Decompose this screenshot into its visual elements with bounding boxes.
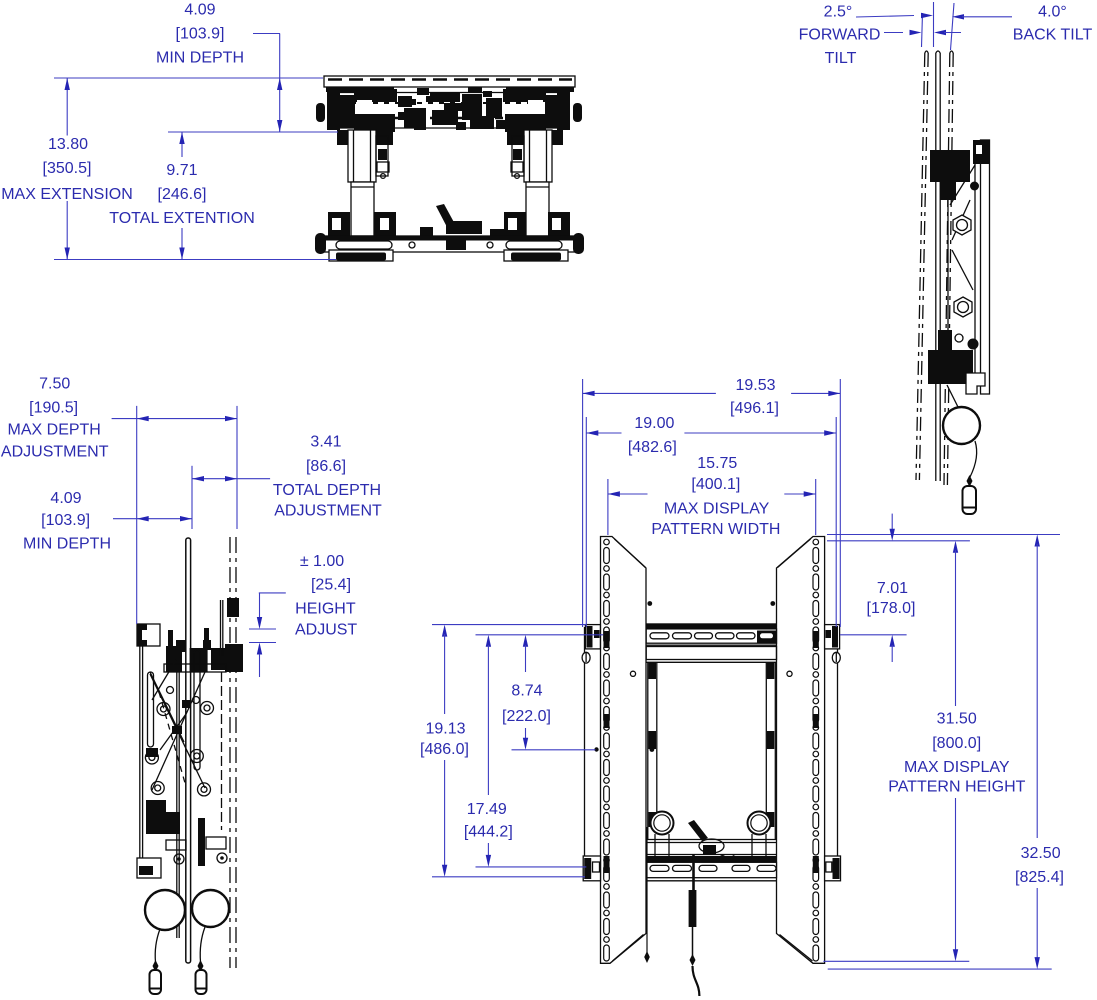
svg-text:[800.0]: [800.0] <box>932 735 981 752</box>
svg-text:7.01: 7.01 <box>877 580 908 597</box>
svg-text:31.50: 31.50 <box>937 711 977 728</box>
svg-text:[482.6]: [482.6] <box>628 439 677 456</box>
svg-text:17.49: 17.49 <box>467 801 507 818</box>
svg-text:[246.6]: [246.6] <box>158 186 207 203</box>
svg-text:TOTAL DEPTH: TOTAL DEPTH <box>273 482 381 499</box>
svg-text:8.74: 8.74 <box>511 683 542 700</box>
svg-text:[103.9]: [103.9] <box>41 512 90 529</box>
svg-text:19.13: 19.13 <box>425 721 465 738</box>
svg-text:HEIGHT: HEIGHT <box>295 601 356 618</box>
svg-text:MAX EXTENSION: MAX EXTENSION <box>1 186 133 203</box>
svg-text:TILT: TILT <box>825 50 857 67</box>
svg-text:9.71: 9.71 <box>166 162 197 179</box>
svg-text:[222.0]: [222.0] <box>502 708 551 725</box>
svg-text:[496.1]: [496.1] <box>730 400 779 417</box>
svg-text:2.5°: 2.5° <box>824 4 853 21</box>
svg-text:[190.5]: [190.5] <box>29 400 78 417</box>
svg-text:3.41: 3.41 <box>310 434 341 451</box>
svg-text:FORWARD: FORWARD <box>799 27 881 44</box>
svg-text:7.50: 7.50 <box>39 376 70 393</box>
svg-text:19.53: 19.53 <box>735 377 775 394</box>
svg-text:MAX DISPLAY: MAX DISPLAY <box>904 759 1010 776</box>
svg-text:4.0°: 4.0° <box>1038 4 1067 21</box>
svg-text:ADJUSTMENT: ADJUSTMENT <box>1 444 109 461</box>
svg-text:MIN DEPTH: MIN DEPTH <box>23 536 111 553</box>
svg-text:[444.2]: [444.2] <box>464 824 513 841</box>
svg-text:ADJUST: ADJUST <box>295 622 357 639</box>
svg-text:PATTERN HEIGHT: PATTERN HEIGHT <box>888 779 1025 796</box>
svg-text:4.09: 4.09 <box>184 2 215 19</box>
svg-text:± 1.00: ± 1.00 <box>300 553 344 570</box>
svg-text:MIN DEPTH: MIN DEPTH <box>156 50 244 67</box>
svg-text:ADJUSTMENT: ADJUSTMENT <box>274 503 382 520</box>
svg-text:[25.4]: [25.4] <box>311 577 351 594</box>
svg-text:19.00: 19.00 <box>634 415 674 432</box>
svg-text:[400.1]: [400.1] <box>691 476 740 493</box>
svg-text:[86.6]: [86.6] <box>306 458 346 475</box>
svg-text:MAX DEPTH: MAX DEPTH <box>8 422 101 439</box>
svg-text:PATTERN WIDTH: PATTERN WIDTH <box>651 521 780 538</box>
svg-text:[103.9]: [103.9] <box>176 26 225 43</box>
svg-text:[178.0]: [178.0] <box>867 600 916 617</box>
svg-text:32.50: 32.50 <box>1021 845 1061 862</box>
svg-text:15.75: 15.75 <box>697 455 737 472</box>
svg-text:TOTAL EXTENTION: TOTAL EXTENTION <box>109 210 255 227</box>
svg-text:[825.4]: [825.4] <box>1015 869 1064 886</box>
svg-text:13.80: 13.80 <box>48 136 88 153</box>
svg-text:[486.0]: [486.0] <box>420 741 469 758</box>
svg-text:MAX DISPLAY: MAX DISPLAY <box>664 501 770 518</box>
svg-text:4.09: 4.09 <box>50 490 81 507</box>
svg-text:BACK TILT: BACK TILT <box>1013 27 1093 44</box>
svg-text:[350.5]: [350.5] <box>43 160 92 177</box>
